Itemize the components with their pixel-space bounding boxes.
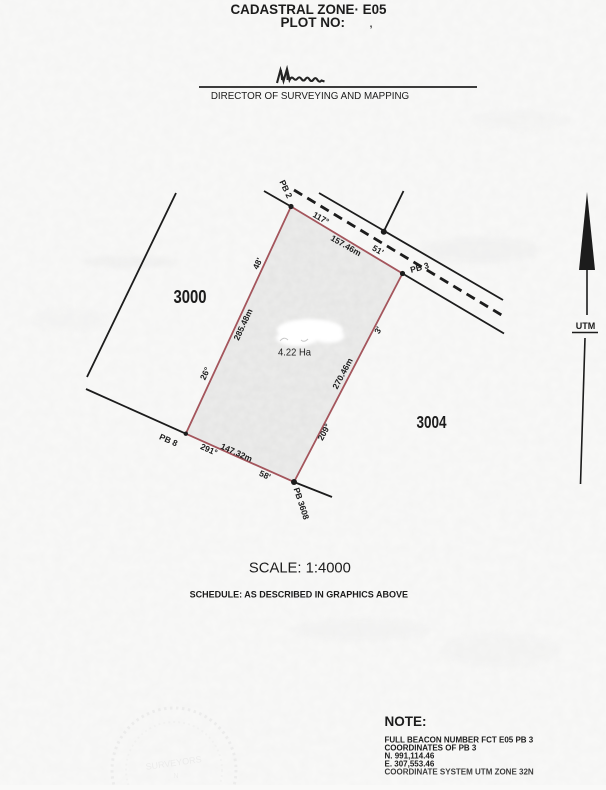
svg-text:4.22 Ha: 4.22 Ha [278,347,311,359]
svg-text:DIRECTOR OF SURVEYING AND MAPP: DIRECTOR OF SURVEYING AND MAPPING [211,91,409,102]
svg-text:UTM: UTM [576,321,596,331]
svg-text:NOTE:: NOTE: [385,714,427,729]
svg-text:SCHEDULE: AS DESCRIBED IN GRAP: SCHEDULE: AS DESCRIBED IN GRAPHICS ABOVE [190,590,408,600]
svg-text:,: , [370,19,373,30]
svg-text:SCALE: 1:4000: SCALE: 1:4000 [249,561,351,577]
svg-text:3000: 3000 [174,286,207,307]
svg-text:COORDINATE SYSTEM UTM ZONE 32N: COORDINATE SYSTEM UTM ZONE 32N [385,768,534,777]
svg-text:PLOT NO:: PLOT NO: [281,15,346,30]
svg-text:3004: 3004 [417,412,447,432]
svg-text:N: N [173,773,178,780]
